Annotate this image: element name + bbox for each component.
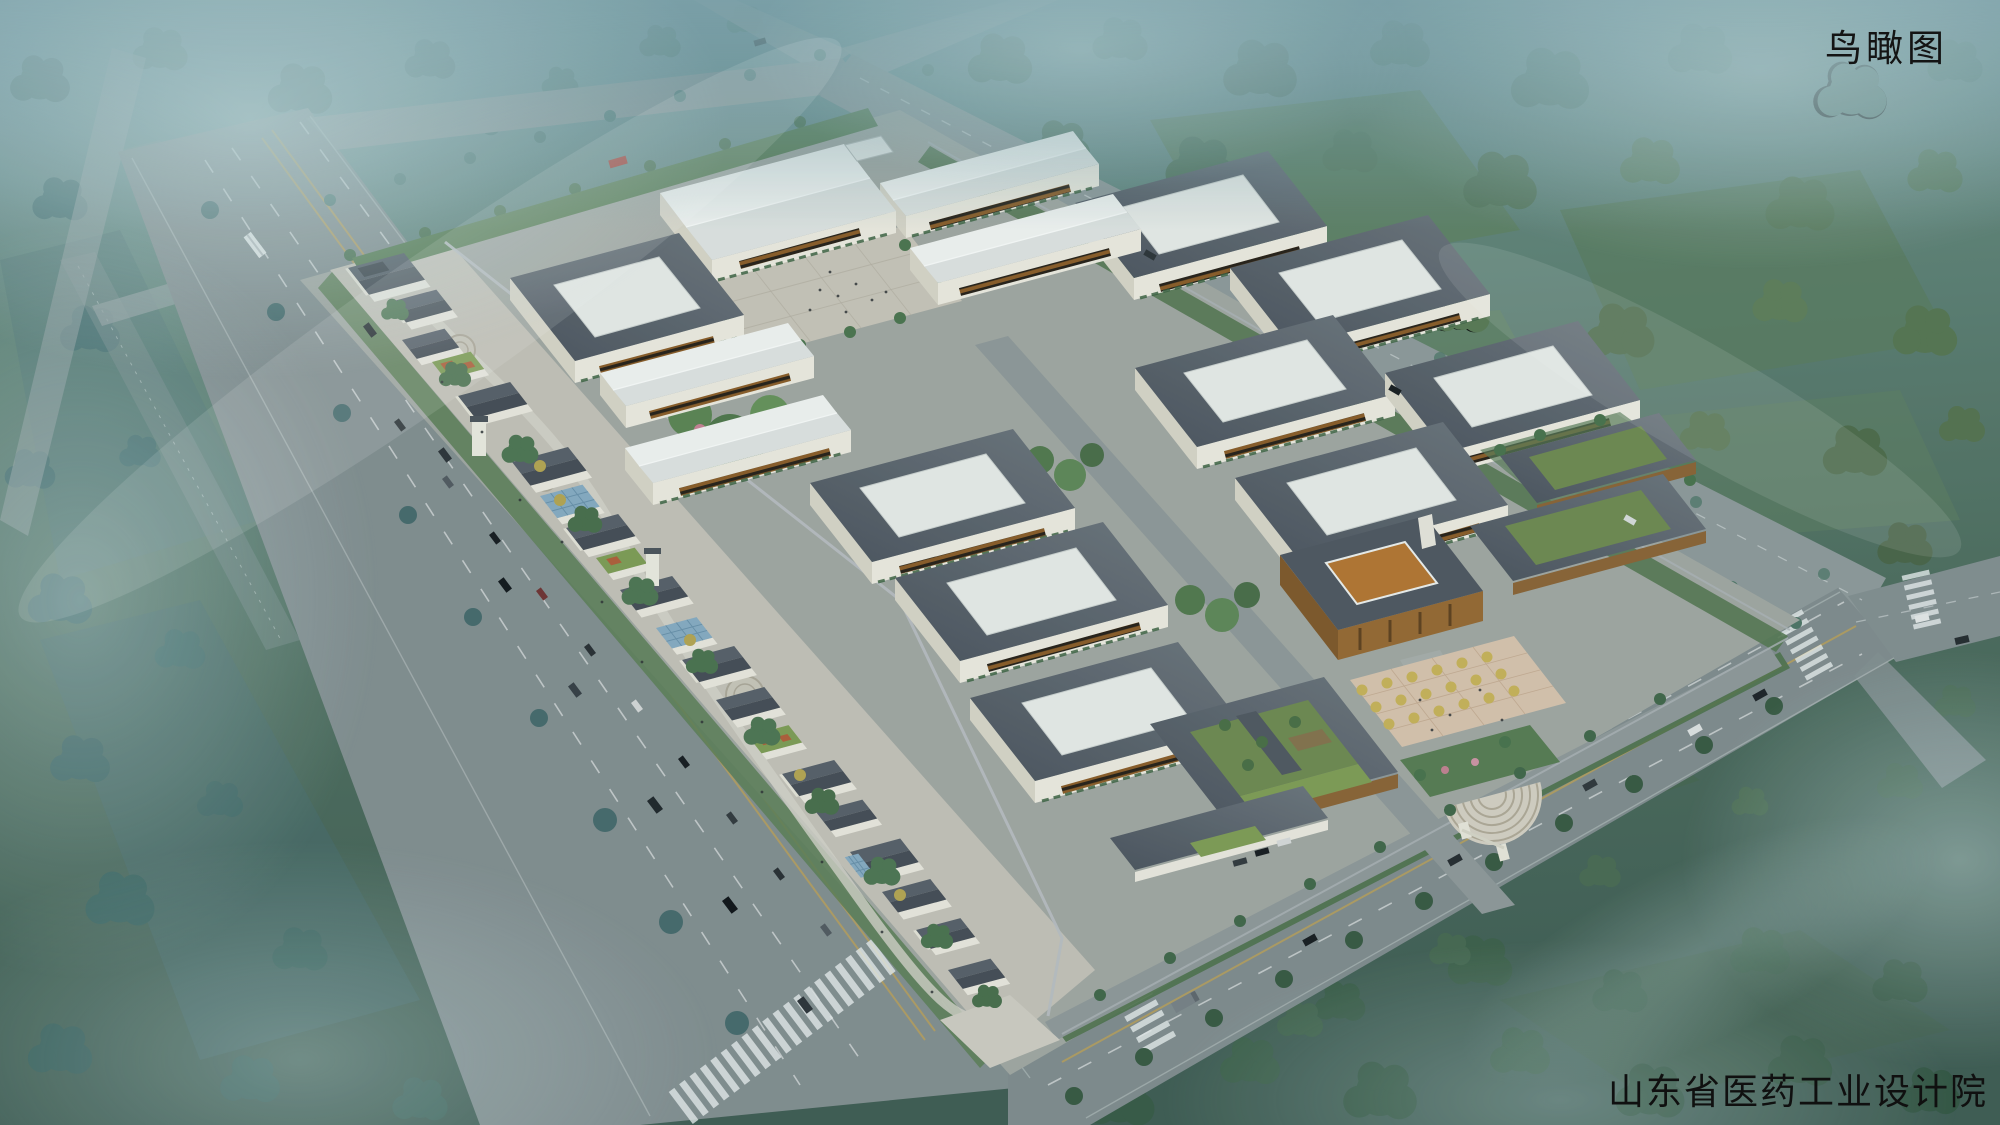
design-institute-credit: 山东省医药工业设计院 bbox=[1608, 1063, 1988, 1115]
view-title-label: 鸟瞰图 bbox=[1825, 18, 1948, 72]
scene-canvas bbox=[0, 0, 2000, 1125]
aerial-rendering: 鸟瞰图 山东省医药工业设计院 bbox=[0, 0, 2000, 1125]
mist-overlays bbox=[0, 0, 2000, 1125]
